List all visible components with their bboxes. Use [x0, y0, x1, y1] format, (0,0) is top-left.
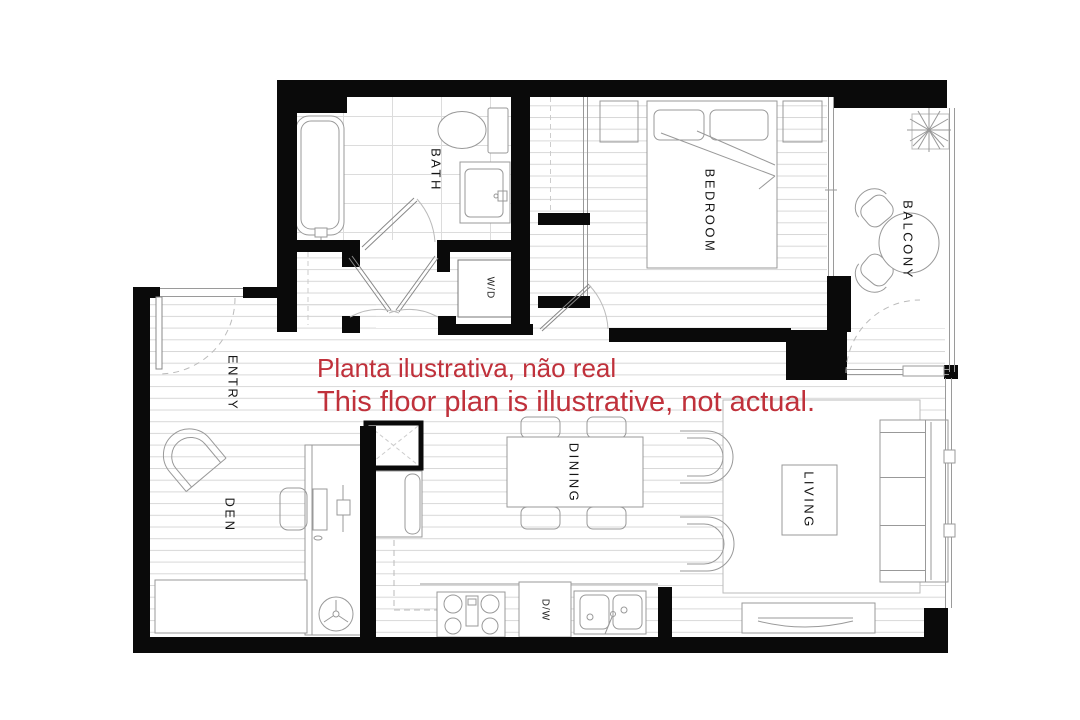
- room-label-bedroom: BEDROOM: [703, 169, 718, 254]
- bathroom-vanity-sink: [460, 162, 510, 223]
- kitchen-sink: [574, 591, 646, 634]
- room-label-den: DEN: [223, 498, 238, 533]
- den-cabinet: [155, 580, 307, 633]
- refrigerator: [369, 471, 422, 537]
- label-washer-dryer: W/D: [485, 277, 496, 299]
- room-label-bath: BATH: [429, 148, 444, 192]
- bathtub: [296, 116, 344, 244]
- stove: [437, 592, 505, 637]
- annotation-line-en: This floor plan is illustrative, not act…: [317, 387, 815, 419]
- floor-plan-page: BATH BEDROOM BALCONY ENTRY DEN DINING LI…: [0, 0, 1080, 720]
- room-label-entry: ENTRY: [226, 355, 241, 411]
- living-window-wall: [944, 378, 955, 608]
- room-label-balcony: BALCONY: [901, 200, 916, 280]
- label-dishwasher: D/W: [540, 599, 551, 621]
- entry-door-threshold: [160, 289, 243, 297]
- room-label-dining: DINING: [567, 443, 582, 504]
- room-label-living: LIVING: [802, 471, 817, 529]
- sofa: [880, 420, 948, 582]
- tv-console: [742, 603, 875, 633]
- balcony-plant: [907, 108, 951, 152]
- den-round-stool: [319, 597, 353, 631]
- annotation-line-pt: Planta ilustrativa, não real: [317, 354, 616, 383]
